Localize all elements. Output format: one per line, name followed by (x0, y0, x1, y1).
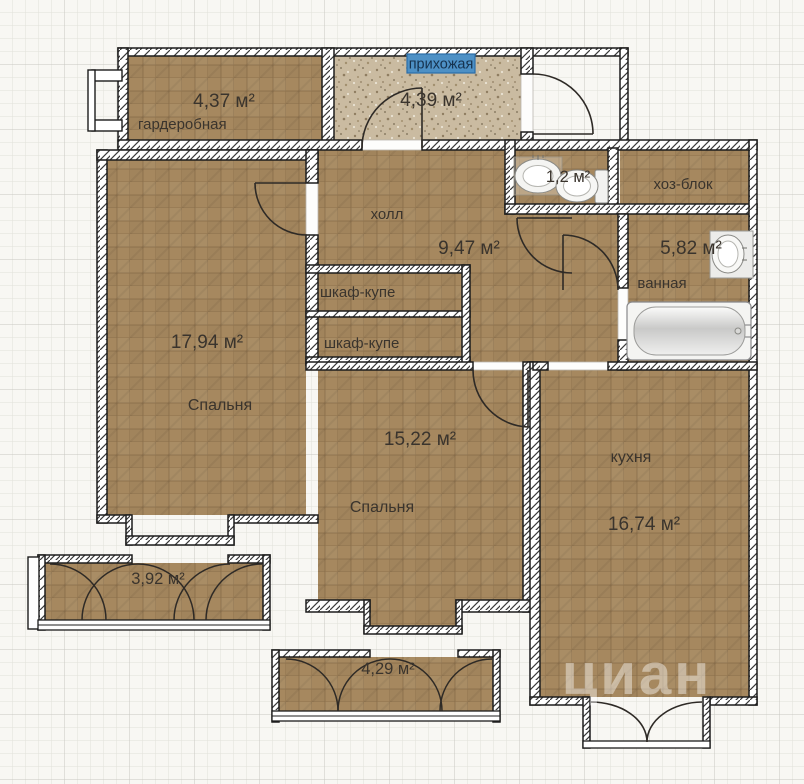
label-bath-area: 5,82 м² (660, 238, 722, 259)
label-closet1: шкаф-купе (320, 284, 395, 301)
label-kitchen-name: кухня (611, 449, 652, 466)
label-bedroom1-area: 17,94 м² (171, 332, 243, 353)
room-hall-corridor-fill (470, 265, 618, 362)
label-bedroom2-area: 15,22 м² (384, 429, 456, 450)
label-bedroom2-name: Спальня (350, 499, 414, 516)
floor-plan: циан 4,37 м² гардеробная прихожая 4,39 м… (0, 0, 804, 784)
label-kitchen-area: 16,74 м² (608, 514, 680, 535)
label-bedroom1-name: Спальня (188, 397, 252, 414)
shaft-bar (88, 70, 95, 131)
label-balcony1-area: 3,92 м² (131, 570, 185, 588)
label-balcony2-area: 4,29 м² (361, 660, 415, 678)
room-bedroom2-fill (318, 370, 523, 600)
label-utility-name: хоз-блок (653, 176, 713, 193)
balcony2-bay-fill (370, 600, 456, 626)
label-entry-area: 4,39 м² (400, 90, 462, 111)
label-entry-name: прихожая (409, 57, 474, 73)
label-hall-area: 9,47 м² (438, 238, 500, 259)
label-closet2: шкаф-купе (324, 335, 399, 352)
label-bath-name: ванная (637, 275, 686, 292)
label-wc-area: 1,2 м² (546, 168, 591, 186)
shaft-top-arm (92, 70, 122, 81)
floor-plan-page: циан 4,37 м² гардеробная прихожая 4,39 м… (0, 0, 804, 784)
balcony-pilaster (28, 557, 39, 629)
bathtub-icon (627, 302, 751, 360)
watermark: циан (562, 642, 713, 707)
label-wardrobe-area: 4,37 м² (193, 91, 255, 112)
label-hall-name: холл (371, 206, 404, 223)
shaft-bottom-arm (92, 120, 122, 131)
label-wardrobe-name: гардеробная (138, 116, 227, 133)
